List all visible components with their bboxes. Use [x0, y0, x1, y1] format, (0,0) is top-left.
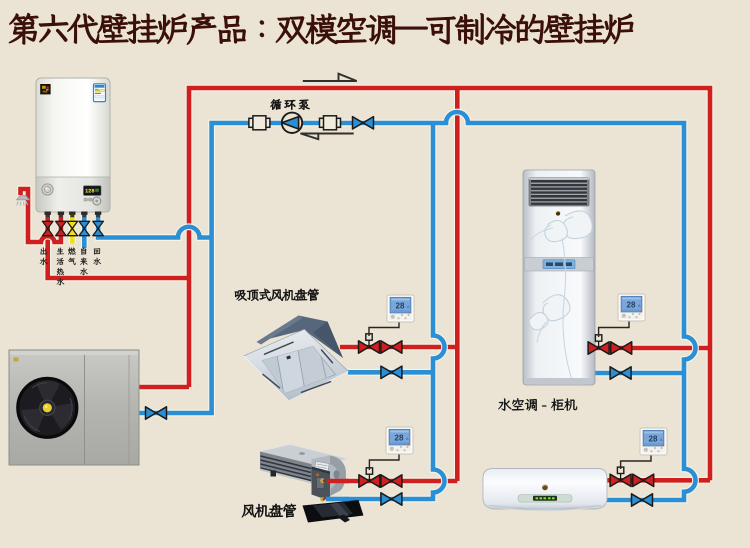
svg-text:A: A — [407, 304, 410, 309]
svg-text:28: 28 — [649, 435, 658, 444]
svg-text:A: A — [638, 303, 641, 308]
svg-text:128: 128 — [85, 189, 95, 195]
svg-text:28: 28 — [396, 302, 405, 311]
svg-text:28: 28 — [395, 434, 404, 443]
svg-text:A: A — [660, 437, 663, 442]
svg-text:28: 28 — [627, 301, 636, 310]
svg-text:A: A — [406, 436, 409, 441]
